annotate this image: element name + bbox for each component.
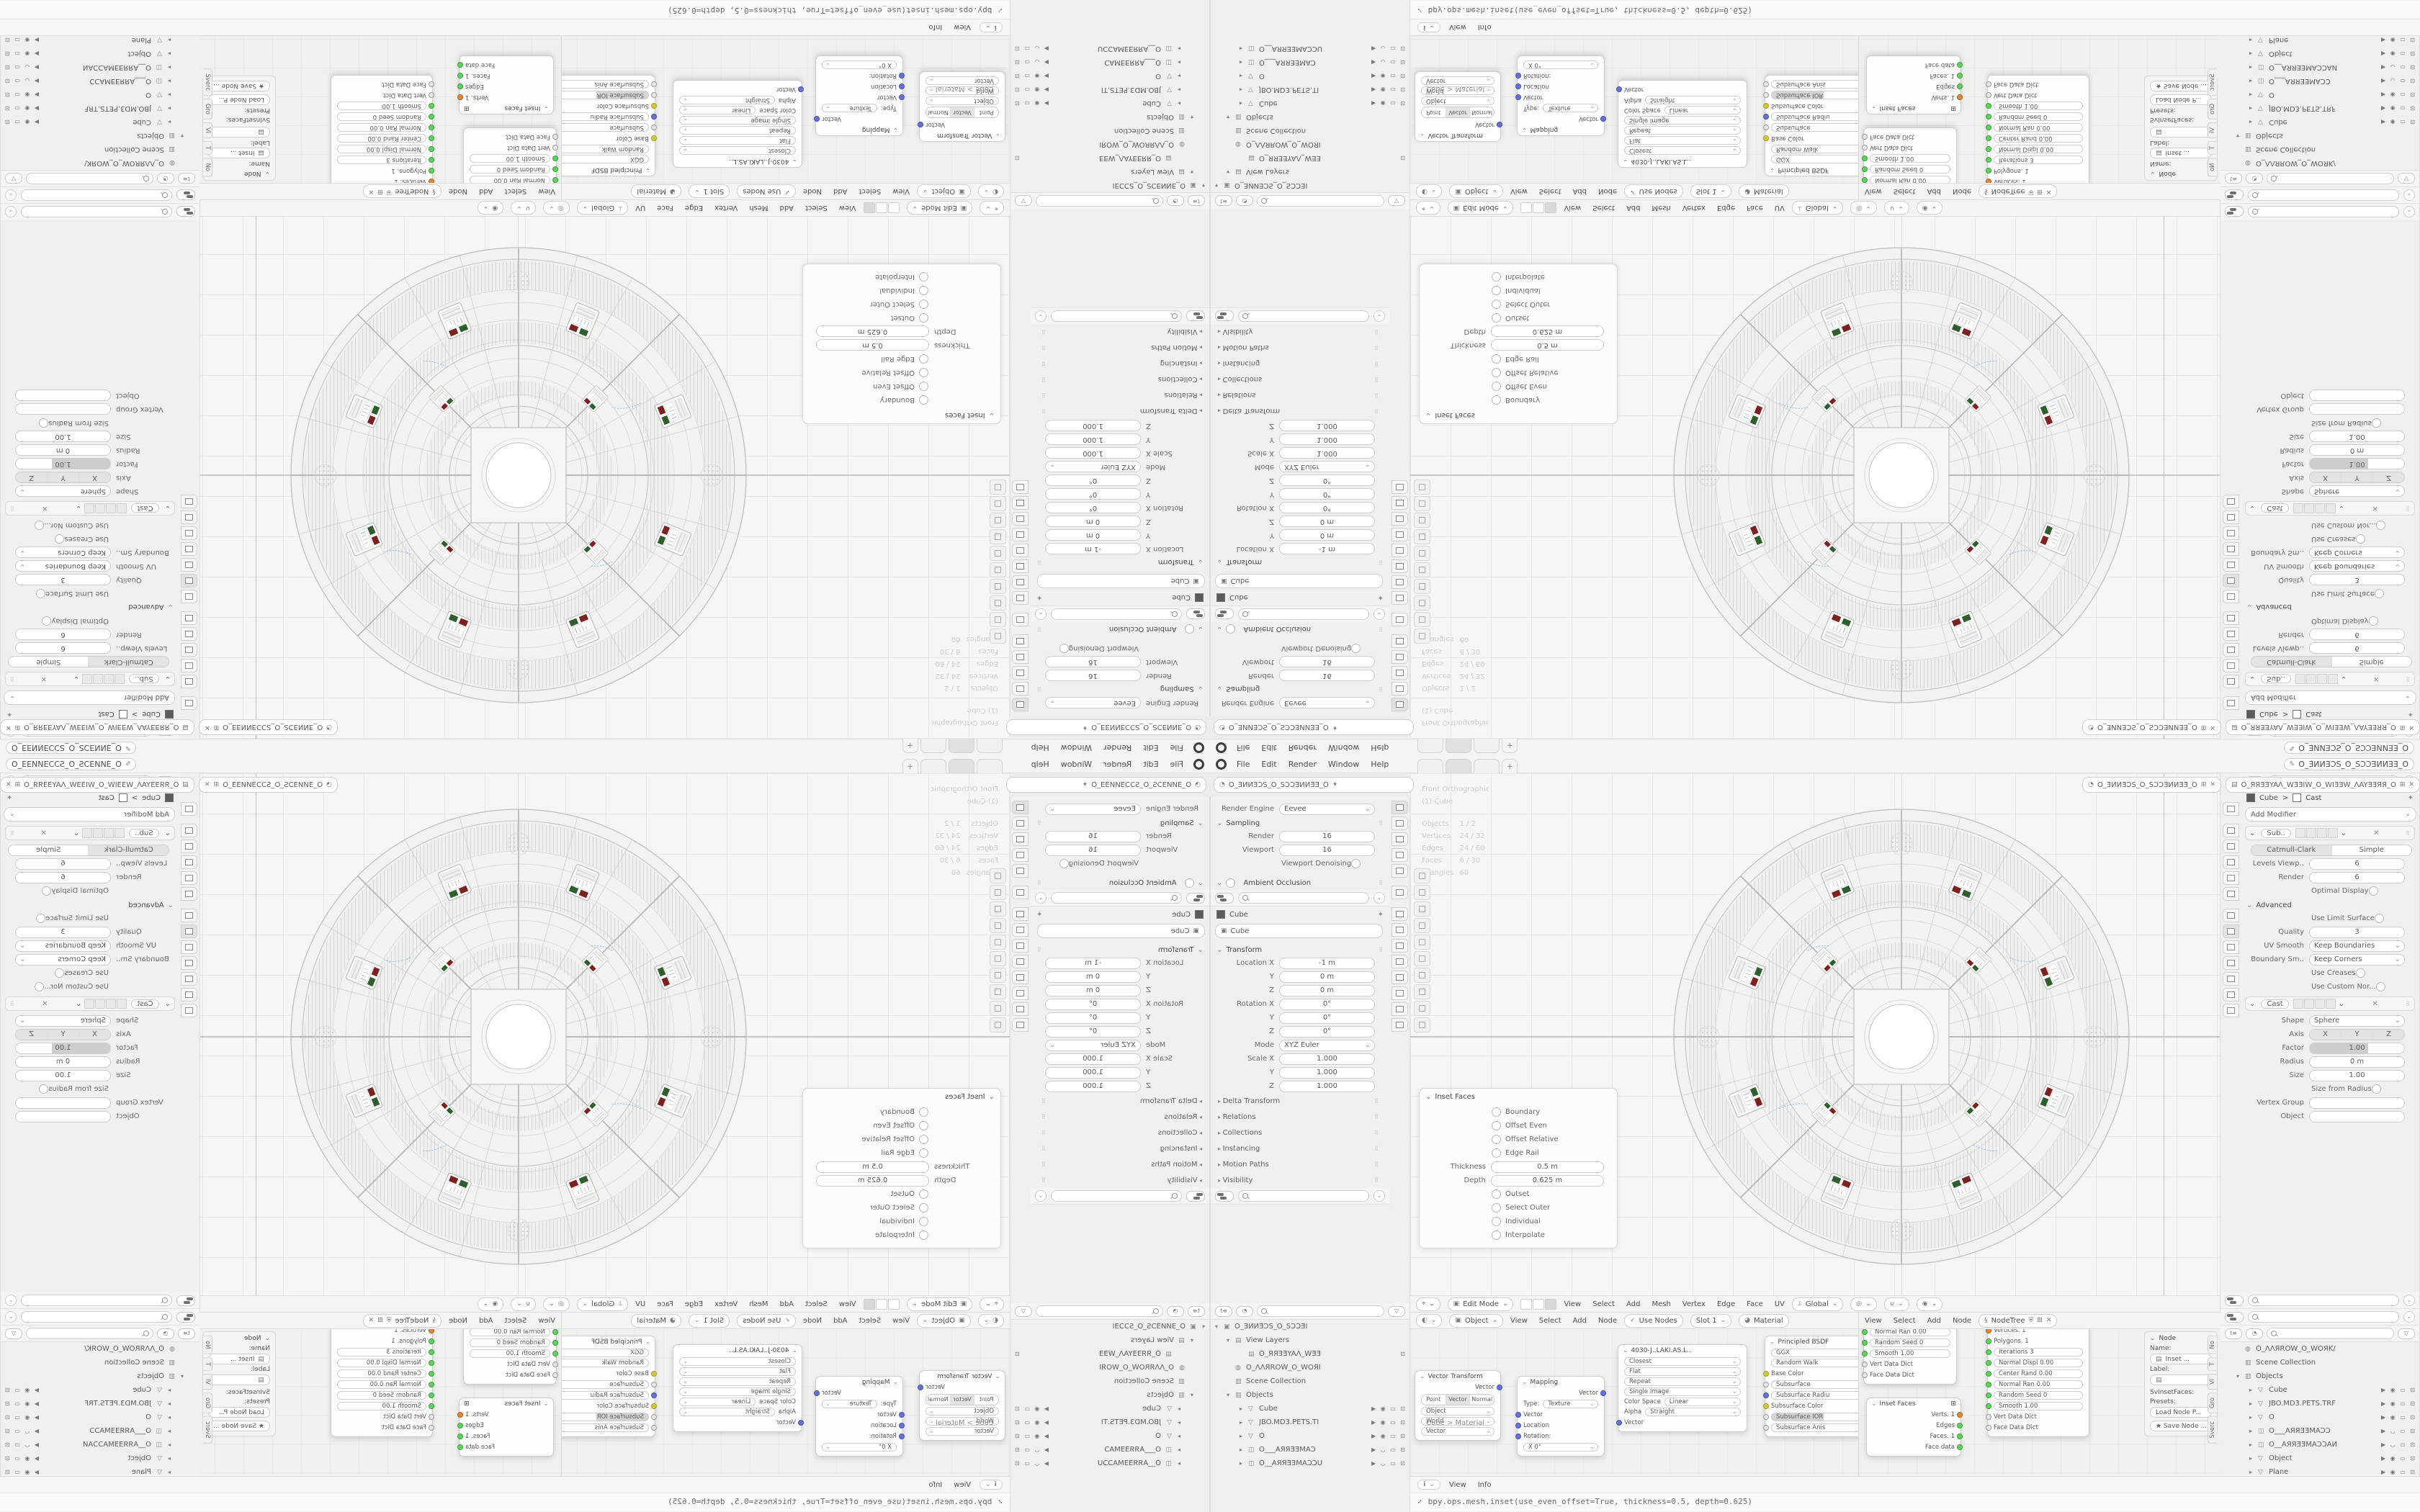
node-mapping[interactable]: Mapping Vector Type: Texture Vector Loca… [1517,55,1605,136]
sverchok-menu-item[interactable]: Node [449,1317,467,1325]
mode-dropdown[interactable]: ▣Edit Mode⌄ [907,1297,973,1311]
outliner-row[interactable]: ▸ ▽ O ▶ ◉ ▭ ⊡ [1010,1429,1209,1443]
node-inset-special-a[interactable]: Normal Ran 0.00 Random Seed 0 Smooth 1.0… [1863,127,1957,188]
shading-type-dropdown[interactable]: ◐⌄ [978,185,1004,199]
transform-panel-header[interactable]: Transform⠿ [1211,556,1389,570]
shader-menu-item[interactable]: Add [833,188,847,196]
n-panel-tab[interactable]: Gro [203,99,212,120]
inset-toggle[interactable]: Boundary [809,393,995,407]
tab-render[interactable] [1013,801,1029,814]
property-row[interactable]: Z 0 m [1031,515,1209,528]
viewlayer-selector[interactable]: ▤ O_ЯЯƎƎYAΛ_WƎƎIW_O_WIƎƎW_ΛAYƎƎЯЯ_O ⊞ ✕ [2226,719,2420,735]
node-dropdown[interactable]: Object [926,96,999,105]
viewport-menu-item[interactable]: Mesh [1652,204,1670,212]
nodetree-selector[interactable]: §NodeTree ⛨ ⊞ ✕ [1978,1314,2057,1328]
node-image-texture[interactable]: 4030-J..LAKI.AS.L.. ClosestFlatRepeatSin… [673,80,802,168]
inset-toggle[interactable]: Boundary [1425,393,1611,407]
property-row[interactable]: Y 0 m [1031,528,1209,542]
node-dropdown[interactable]: Flat [1624,1367,1741,1376]
collapsed-panel-header[interactable]: Instancing⠿ [1031,1140,1209,1156]
node-inset-special-b[interactable]: Vertices. 1 Polygons. 1 Iterations 3 Nor… [331,75,433,189]
sverchok-menu-item[interactable]: View [1865,1317,1882,1325]
subdivision-modifier-header[interactable]: ⌄ Sub.. ⌄✕ ⠿ [5,826,175,840]
filter-icon[interactable]: ▽ [5,1328,22,1339]
outliner-row[interactable]: ◍ O_ΛΛЯROW_O_WOЯK/ [2220,1342,2419,1356]
inset-toggle[interactable]: Offset Even [1425,1119,1611,1133]
sampling-panel-header[interactable]: Sampling⠿ [1211,683,1389,696]
outliner-row[interactable]: ▾ ▥ Objects [2220,129,2419,143]
property-row[interactable]: Viewport Denoising [1031,642,1209,655]
tab-constraints[interactable] [2223,972,2239,986]
property-row[interactable]: UV Smooth Keep Boundaries [2241,559,2419,573]
outliner-row[interactable]: ▸ ▽ Object ▶ ◉ ▭ ⊡ [2220,47,2419,60]
tab-scene[interactable] [181,627,198,641]
tool-move[interactable] [990,901,1006,917]
tab-data[interactable] [181,510,198,524]
n-panel-tab[interactable]: Sverc [203,1416,212,1444]
property-row[interactable]: Viewport Denoising [1211,857,1389,870]
add-modifier-dropdown[interactable]: Add Modifier⌄ [2245,807,2416,822]
tab-tool[interactable] [1391,591,1408,605]
property-row[interactable]: Vertex Group [1,1096,179,1110]
close-icon[interactable]: ✕ [41,675,47,683]
proportional-edit-dropdown[interactable]: ◉⌄ [1917,202,1942,215]
node-dropdown[interactable]: Single Image [679,116,796,125]
shading-type-dropdown[interactable]: ◐⌄ [1416,185,1442,199]
viewport-menu-item[interactable]: View [839,1300,856,1308]
outliner-row[interactable]: ▸ ▽ O ▶ ◉ ▭ ⊡ [1211,1429,1410,1443]
tab-modifiers[interactable] [1391,939,1408,953]
search-input[interactable] [21,1311,172,1323]
outliner-row[interactable]: ◍ O_ΛΛЯROW_O_WOЯI [1010,1361,1209,1374]
viewport-menu-item[interactable]: Mesh [749,1300,768,1308]
filter-icon[interactable]: ▽ [1388,196,1405,207]
shader-menu-item[interactable]: Select [1539,188,1561,196]
sampling-panel-header[interactable]: Sampling⠿ [1031,816,1209,829]
inset-toggle[interactable]: Edge Rail [1425,1146,1611,1160]
display-mode-dropdown[interactable]: t≡ [2225,174,2242,184]
workspace-tab[interactable] [1474,759,1500,773]
property-row[interactable]: Location X -1 m [1031,542,1209,556]
property-row[interactable]: Y 0° [1031,1011,1209,1025]
property-row[interactable]: Factor 1.00 [2241,1041,2419,1055]
property-row[interactable]: Render 16 [1031,829,1209,843]
info-editor-type-dropdown[interactable]: ℹ⌄ [1417,1480,1440,1490]
copy-icon[interactable]: ⊞ [2201,781,2207,788]
transform-panel-header[interactable]: Transform⠿ [1031,556,1209,570]
shader-editor[interactable]: ◐⌄ ▣Object⌄ View Select Add Node ✓Use No… [562,1312,1010,1477]
slot-dropdown[interactable]: Slot 1⌄ [1690,1314,1731,1328]
viewport-menu-item[interactable]: UV [1775,204,1785,212]
property-row[interactable]: Shape Sphere [2241,1014,2419,1027]
tab-constraints[interactable] [1013,512,1029,526]
property-row[interactable]: Quality 3 [2241,573,2419,587]
blender-logo-icon[interactable] [1216,759,1227,770]
property-row[interactable]: Z 0° [1211,474,1389,487]
outliner-row[interactable]: ▸ ▽ O ▶ ◉ ▭ ⊡ [1211,69,1410,83]
close-icon[interactable]: ✕ [2373,829,2379,837]
filter-toggle-icon[interactable] [2225,190,2244,201]
add-workspace-button[interactable]: + [902,739,918,754]
tab-constraints[interactable] [1391,512,1408,526]
node-dropdown[interactable]: Random Walk [562,145,649,153]
property-row[interactable]: Vertex Group [2241,402,2419,416]
inset-field[interactable]: Depth0.625 m [809,1174,995,1187]
collapsed-panel-header[interactable]: Visibility⠿ [1211,1172,1389,1188]
tab-physics[interactable] [1013,528,1029,541]
outliner-row[interactable]: ▥ Scene Collection [2220,143,2419,156]
tab-scene[interactable] [1013,650,1029,664]
outliner-row[interactable]: ▸ ▽ Cube ▶ ◉ ▭ ⊡ [1010,96,1209,110]
inset-toggle[interactable]: Individual [809,1215,995,1228]
property-row[interactable]: Z 1.000 [1211,1079,1389,1093]
property-row[interactable]: Scale X 1.000 [1031,1052,1209,1066]
tab-modifiers[interactable] [1391,559,1408,573]
property-row[interactable]: Z 0° [1031,474,1209,487]
tab-modifiers[interactable] [181,574,198,588]
sverchok-menu-item[interactable]: Select [1894,1317,1916,1325]
tab-object[interactable] [2223,590,2239,603]
chevron-down-icon[interactable]: ⌄ [2403,1311,2415,1323]
tool-select[interactable] [1414,868,1430,883]
display-mode-dropdown[interactable]: t≡ [2225,1328,2242,1339]
collapsed-panel-header[interactable]: Instancing⠿ [1031,356,1209,372]
node-dropdown[interactable]: Random Walk [562,1359,649,1367]
property-row[interactable]: Object [1,389,179,402]
tab-render[interactable] [1391,698,1408,711]
property-row[interactable]: Radius 0 m [2241,1055,2419,1068]
n-panel-tab[interactable]: T [2208,141,2217,155]
tab-modifiers[interactable] [181,924,198,938]
outliner-row[interactable]: ▾ ▥ Objects [2220,1369,2419,1383]
display-mode-dropdown[interactable]: t≡ [178,1328,195,1339]
outliner-row[interactable]: ▾ ▣ O_ƎИИƎƆS_O_SƆƆƎI [1211,1320,1410,1333]
workspace-tab[interactable] [920,739,946,754]
property-row[interactable]: Viewport 16 [1211,655,1389,669]
render-engine-row[interactable]: Render Engine Eevee [1031,802,1209,816]
workspace-tab-active[interactable] [1446,739,1471,754]
close-icon[interactable]: ✕ [42,505,48,513]
property-row[interactable]: Vertex Group [2241,1096,2419,1110]
property-row[interactable]: Mode XYZ Euler [1211,1038,1389,1052]
info-menu-item[interactable]: View [1449,24,1466,32]
property-row[interactable]: Y 1.000 [1211,433,1389,446]
property-row[interactable]: Y 0° [1031,487,1209,501]
copy-icon[interactable]: ⊞ [377,1317,383,1324]
property-row[interactable]: Y 0 m [1211,970,1389,984]
viewport-menu-item[interactable]: Edge [1717,1300,1735,1308]
viewport-menu-item[interactable]: Mesh [749,204,768,212]
tool-select[interactable] [1414,629,1430,644]
copy-icon[interactable]: ⊞ [2037,188,2043,195]
workspace-tab[interactable] [1417,759,1443,773]
object-id-field[interactable]: ▣ Cube [1037,924,1205,938]
n-panel-tab[interactable]: Vi [203,1374,212,1390]
workspace-tab[interactable] [920,759,946,773]
transform-panel-header[interactable]: Transform⠿ [1211,942,1389,956]
tool-cursor[interactable] [1414,885,1430,900]
tool-scale[interactable] [1414,562,1430,577]
snap-dropdown[interactable]: ∪⌄ [511,202,536,215]
info-editor-type-dropdown[interactable]: ℹ⌄ [980,22,1003,32]
inset-toggle[interactable]: Outset [809,311,995,325]
advanced-panel-header[interactable]: Advanced [2241,600,2419,614]
pivot-dropdown[interactable]: ◎⌄ [543,1297,569,1311]
outliner-row[interactable]: ▸ ▽ JBO.MD3.PETS.TRF ▶ ◉ ▭ ⊡ [2220,102,2419,115]
node-dropdown[interactable]: Repeat [1624,1377,1741,1386]
inset-toggle[interactable]: Select Outer [1425,1201,1611,1215]
tool-inset[interactable] [990,1017,1006,1032]
info-menu-item[interactable]: View [954,1481,971,1489]
save-node-preset-button[interactable]: ★ Save Node ... [2150,1421,2212,1431]
viewport-3d[interactable]: Front Orthographic(1) Cube Objects1 / 2 … [1410,773,2220,1312]
property-row[interactable]: Z 0 m [1211,515,1389,528]
filter-toggle-icon[interactable] [1186,893,1205,904]
inset-toggle[interactable]: Individual [1425,1215,1611,1228]
node-dropdown[interactable]: Flat [679,1367,796,1376]
tab-scene[interactable] [2223,871,2239,885]
chevron-down-icon[interactable]: ⌄ [5,206,17,217]
node-principled-bsdf[interactable]: Principled BSDF GGXRandom Walk Base Colo… [1765,75,1858,176]
tab-object-2[interactable] [1013,575,1029,589]
info-editor-type-dropdown[interactable]: ℹ⌄ [1417,22,1440,32]
inset-toggle[interactable]: Select Outer [809,297,995,311]
tab-physics[interactable] [181,956,198,970]
shading-type-dropdown[interactable]: ◐⌄ [1416,1314,1442,1328]
workspace-tab[interactable] [1474,739,1500,754]
tool-annotate[interactable] [990,529,1006,544]
tab-data[interactable] [1391,496,1408,510]
tab-physics[interactable] [2223,956,2239,970]
close-icon[interactable]: ✕ [2210,724,2215,731]
close-icon[interactable]: ✕ [2408,724,2414,731]
property-row[interactable]: Render 16 [1211,829,1389,843]
tab-physics[interactable] [181,542,198,556]
inset-toggle[interactable]: Individual [809,284,995,297]
filter-toggle-icon[interactable] [1215,893,1234,904]
outliner-row[interactable]: ▸ ◫ O__AЯЯƎƎMAƆƆAИ ▶ ◡ ▭ ⊡ [1,1438,200,1452]
property-row[interactable]: Y 0 m [1031,970,1209,984]
property-row[interactable]: Viewport 16 [1211,843,1389,857]
outliner-row[interactable]: ▸ ▽ JBO.MD3.PETS.TI ▶ ◉ ▭ ⊡ [1211,1416,1410,1429]
shader-editor[interactable]: ◐⌄ ▣Object⌄ View Select Add Node ✓Use No… [562,35,1010,200]
collapsed-panel-header[interactable]: Delta Transform⠿ [1211,1093,1389,1109]
viewport-menu-item[interactable]: Edge [1717,204,1735,212]
n-panel-tab[interactable]: T [203,141,212,155]
nodetree-selector[interactable]: §NodeTree ⛨ ⊞ ✕ [1978,185,2057,199]
property-row[interactable]: Use Limit Surface [1,587,179,600]
object-id-field[interactable]: ▣ Cube [1215,574,1383,588]
outliner-row[interactable]: ▤ O_ЯЯƎƎYAΛ_WƎƎ ⊡ [1211,1347,1410,1361]
n-panel-tab[interactable]: Gro [2208,99,2217,120]
outliner-row[interactable]: ▸ ▽ Cube ▶ ◉ ▭ ⊡ [2220,115,2419,129]
topbar-menu-item[interactable]: Help [1371,743,1389,752]
close-icon[interactable]: ✕ [2046,1317,2052,1324]
inset-toggle[interactable]: Select Outer [1425,297,1611,311]
orientation-dropdown[interactable]: ⟂Global⌄ [577,202,628,215]
proportional-edit-dropdown[interactable]: ◉⌄ [478,1297,503,1311]
save-node-preset-button[interactable]: ★ Save Node ... [208,1421,270,1431]
tab-view-layer[interactable] [181,855,198,869]
inset-toggle[interactable]: Select Outer [809,1201,995,1215]
tab-world[interactable] [1391,864,1408,878]
filter-toggle-icon[interactable] [1186,1191,1205,1202]
pin-icon[interactable]: ✦ [1378,594,1384,602]
edge-select-button[interactable] [876,1299,887,1310]
filter-toggle-icon[interactable] [176,1312,195,1323]
property-row[interactable]: Render 6 [2241,870,2419,884]
inset-toggle[interactable]: Boundary [1425,1105,1611,1119]
collapsed-panel-header[interactable]: Delta Transform⠿ [1031,403,1209,419]
node-dropdown[interactable]: GGX [562,1349,649,1357]
viewport-menu-item[interactable]: Face [657,1300,673,1308]
close-icon[interactable]: ✕ [2408,781,2414,788]
ambient-occlusion-panel[interactable]: Ambient Occlusion⠿ [1031,622,1209,637]
outliner-row[interactable]: ▸ ◫ O___AЯЯƎƎMAƆƆ ▶ ◡ ▭ ⊡ [2220,74,2419,88]
property-row[interactable]: Location X -1 m [1211,542,1389,556]
property-row[interactable]: Y 0 m [1211,528,1389,542]
close-icon[interactable]: ✕ [369,1317,375,1324]
tab-modifiers[interactable] [2223,574,2239,588]
sverchok-menu-item[interactable]: Add [479,1317,493,1325]
ambient-occlusion-panel[interactable]: Ambient Occlusion⠿ [1211,875,1389,890]
cast-modifier-header[interactable]: ⌄ Cast ⌄✕ ⠿ [2245,996,2415,1011]
scene-icon[interactable]: ◔ [1167,1306,1184,1317]
blender-logo-icon[interactable] [1216,742,1227,753]
sverchok-menu-item[interactable]: Select [504,188,526,196]
scene-selector[interactable]: ✎ O_ƎИИƎƆS_O_SƆƆƎИИƎƎ_O [6,742,136,754]
close-icon[interactable]: ✕ [2046,188,2052,195]
outliner-row[interactable]: ▸ ▽ JBO.MD3.PETS.TI ▶ ◉ ▭ ⊡ [1010,1416,1209,1429]
property-row[interactable]: Size 1.00 [1,1068,179,1082]
outliner-row[interactable]: ▥ Scene Collection [1211,124,1410,138]
tab-tool[interactable] [1013,591,1029,605]
property-row[interactable]: Z 0° [1031,1025,1209,1038]
n-panel-tab[interactable]: No [203,158,212,176]
sverchok-menu-item[interactable]: View [1865,188,1882,196]
node-image-texture[interactable]: 4030-J..LAKI.AS.L.. ClosestFlatRepeatSin… [1618,80,1747,168]
shader-menu-item[interactable]: Select [859,188,881,196]
property-row[interactable]: Render 6 [1,870,179,884]
inset-toggle[interactable]: Offset Even [809,1119,995,1133]
load-node-preset-button[interactable]: Load Node P... [2150,1407,2212,1418]
tab-constraints[interactable] [1013,986,1029,1000]
outliner-row[interactable]: ▾ ▣ O_ƎИИƎƆS_O_SƆƆƎI [1010,179,1209,192]
sverchok-menu-item[interactable]: View [538,1317,555,1325]
tab-view-layer[interactable] [2223,643,2239,657]
tool-measure[interactable] [1414,984,1430,999]
close-icon[interactable]: ✕ [2210,781,2215,788]
info-menu-item[interactable]: Info [1478,24,1492,32]
collapsed-panel-header[interactable]: Motion Paths⠿ [1031,1156,1209,1172]
outliner-row[interactable]: ▸ ◫ O__AЯЯƎƎMAƆƆU ▶ ◡ ▭ ⊡ [1211,1457,1410,1470]
shader-id-dropdown[interactable]: ▣Object⌄ [917,1314,971,1328]
node-image-texture[interactable]: 4030-J..LAKI.AS.L.. ClosestFlatRepeatSin… [673,1344,802,1432]
vertex-select-button[interactable] [1520,203,1532,214]
scene-datablock-selector[interactable]: ◔ O_ƎИИƎƆS_O_SƆƆƎИИƎƎ_O ⊞ ✕ [2082,719,2221,735]
tab-particles[interactable] [2223,940,2239,954]
property-row[interactable]: UV Smooth Keep Boundaries [2241,939,2419,953]
node-inset-faces[interactable]: Inset Faces ⊞ Verts. 1 Edges Faces. 1 Fa… [1866,1398,1961,1457]
outliner-row[interactable]: ▥ Scene Collection [1010,124,1209,138]
outliner-row[interactable]: ▸ ◫ O__AЯЯƎƎMAƆƆU ▶ ◡ ▭ ⊡ [1010,1457,1209,1470]
operator-log-line[interactable]: ✓bpy.ops.mesh.inset(use_even_offset=True… [1410,1,2420,19]
orientation-dropdown[interactable]: ⟂Global⌄ [1792,202,1843,215]
node-dropdown[interactable]: GGX [1771,1349,1858,1357]
pin-icon[interactable]: ✦ [1036,911,1042,919]
outliner-row[interactable]: ▸ ▽ Cube ▶ ◉ ▭ ⊡ [1010,1402,1209,1416]
inset-toggle[interactable]: Interpolate [809,1228,995,1242]
node-label-field[interactable]: ▤ [2150,1374,2212,1385]
tab-render[interactable] [1391,801,1408,814]
tab-output[interactable] [181,659,198,672]
copy-icon[interactable]: ⊞ [2400,724,2406,731]
tab-physics[interactable] [1391,971,1408,984]
node-vector-transform[interactable]: Vector Transform Vector PointVectorNorma… [1415,1370,1501,1441]
property-row[interactable]: Render 16 [1211,669,1389,683]
subdiv-type-toggle[interactable]: Catmull-ClarkSimple [2241,655,2419,669]
outliner-row[interactable]: ◍ O_ΛΛЯROW_O_WOЯK/ [1,156,200,170]
property-row[interactable]: Levels Viewp.. 6 [1,642,179,655]
edge-select-button[interactable] [876,203,887,214]
tool-move[interactable] [1414,901,1430,917]
tab-view-layer[interactable] [1391,832,1408,846]
tab-object[interactable] [1013,886,1029,899]
advanced-panel-header[interactable]: Advanced [2241,898,2419,912]
shader-menu-item[interactable]: View [1510,188,1528,196]
property-row[interactable]: Optimal Display [2241,884,2419,898]
outliner-row[interactable]: ▸ ▽ JBO.MD3.PETS.TRF ▶ ◉ ▭ ⊡ [1,1397,200,1410]
node-dropdown[interactable]: Object [926,1407,999,1416]
cast-axis-row[interactable]: Axis XYZ [1,1027,179,1041]
property-row[interactable]: Use Limit Surface [2241,912,2419,925]
search-input[interactable] [1051,310,1182,322]
search-input[interactable] [2248,206,2399,217]
node-label-field[interactable]: ▤ [208,127,270,138]
copy-icon[interactable]: ⊞ [2400,781,2406,788]
display-mode-dropdown[interactable]: t≡ [1188,1306,1205,1317]
node-dropdown[interactable]: GGX [1771,155,1858,163]
cast-axis-row[interactable]: Axis XYZ [1,471,179,485]
tool-extrude[interactable] [990,496,1006,511]
operator-log-line[interactable]: ✓bpy.ops.mesh.inset(use_even_offset=True… [0,1493,1010,1511]
pin-icon[interactable]: ✦ [1083,724,1088,731]
search-input[interactable] [2248,1295,2399,1306]
n-panel-tab[interactable]: T [2208,1357,2217,1371]
collapsed-panel-header[interactable]: Relations⠿ [1211,1109,1389,1125]
inset-toggle[interactable]: Edge Rail [1425,352,1611,366]
workspace-tab-active[interactable] [1446,759,1471,773]
property-row[interactable]: Factor 1.00 [1,1041,179,1055]
inset-toggle[interactable]: Edge Rail [809,1146,995,1160]
tool-inset[interactable] [1414,1017,1430,1032]
outliner-row[interactable]: ▾ ▥ Objects [1,1369,200,1383]
property-row[interactable]: Size 1.00 [2241,430,2419,444]
property-row[interactable]: UV Smooth Keep Boundaries [1,559,179,573]
tool-rotate[interactable] [1414,918,1430,933]
display-mode-dropdown[interactable]: t≡ [1215,1306,1232,1317]
property-row[interactable]: Object [1,1110,179,1123]
outliner-row[interactable]: ▾ ▤ View Layers [1211,165,1410,179]
shader-editor[interactable]: ◐⌄ ▣Object⌄ View Select Add Node ✓Use No… [1410,1312,1858,1477]
shader-menu-item[interactable]: Select [1539,1317,1561,1325]
scene-icon[interactable]: ◔ [157,1328,174,1339]
node-dropdown[interactable]: Object [1421,96,1494,105]
property-row[interactable]: UV Smooth Keep Boundaries [1,939,179,953]
property-row[interactable]: Use Creases [2241,532,2419,546]
tab-scene[interactable] [2223,627,2239,641]
pin-icon[interactable]: ✦ [1378,911,1384,919]
